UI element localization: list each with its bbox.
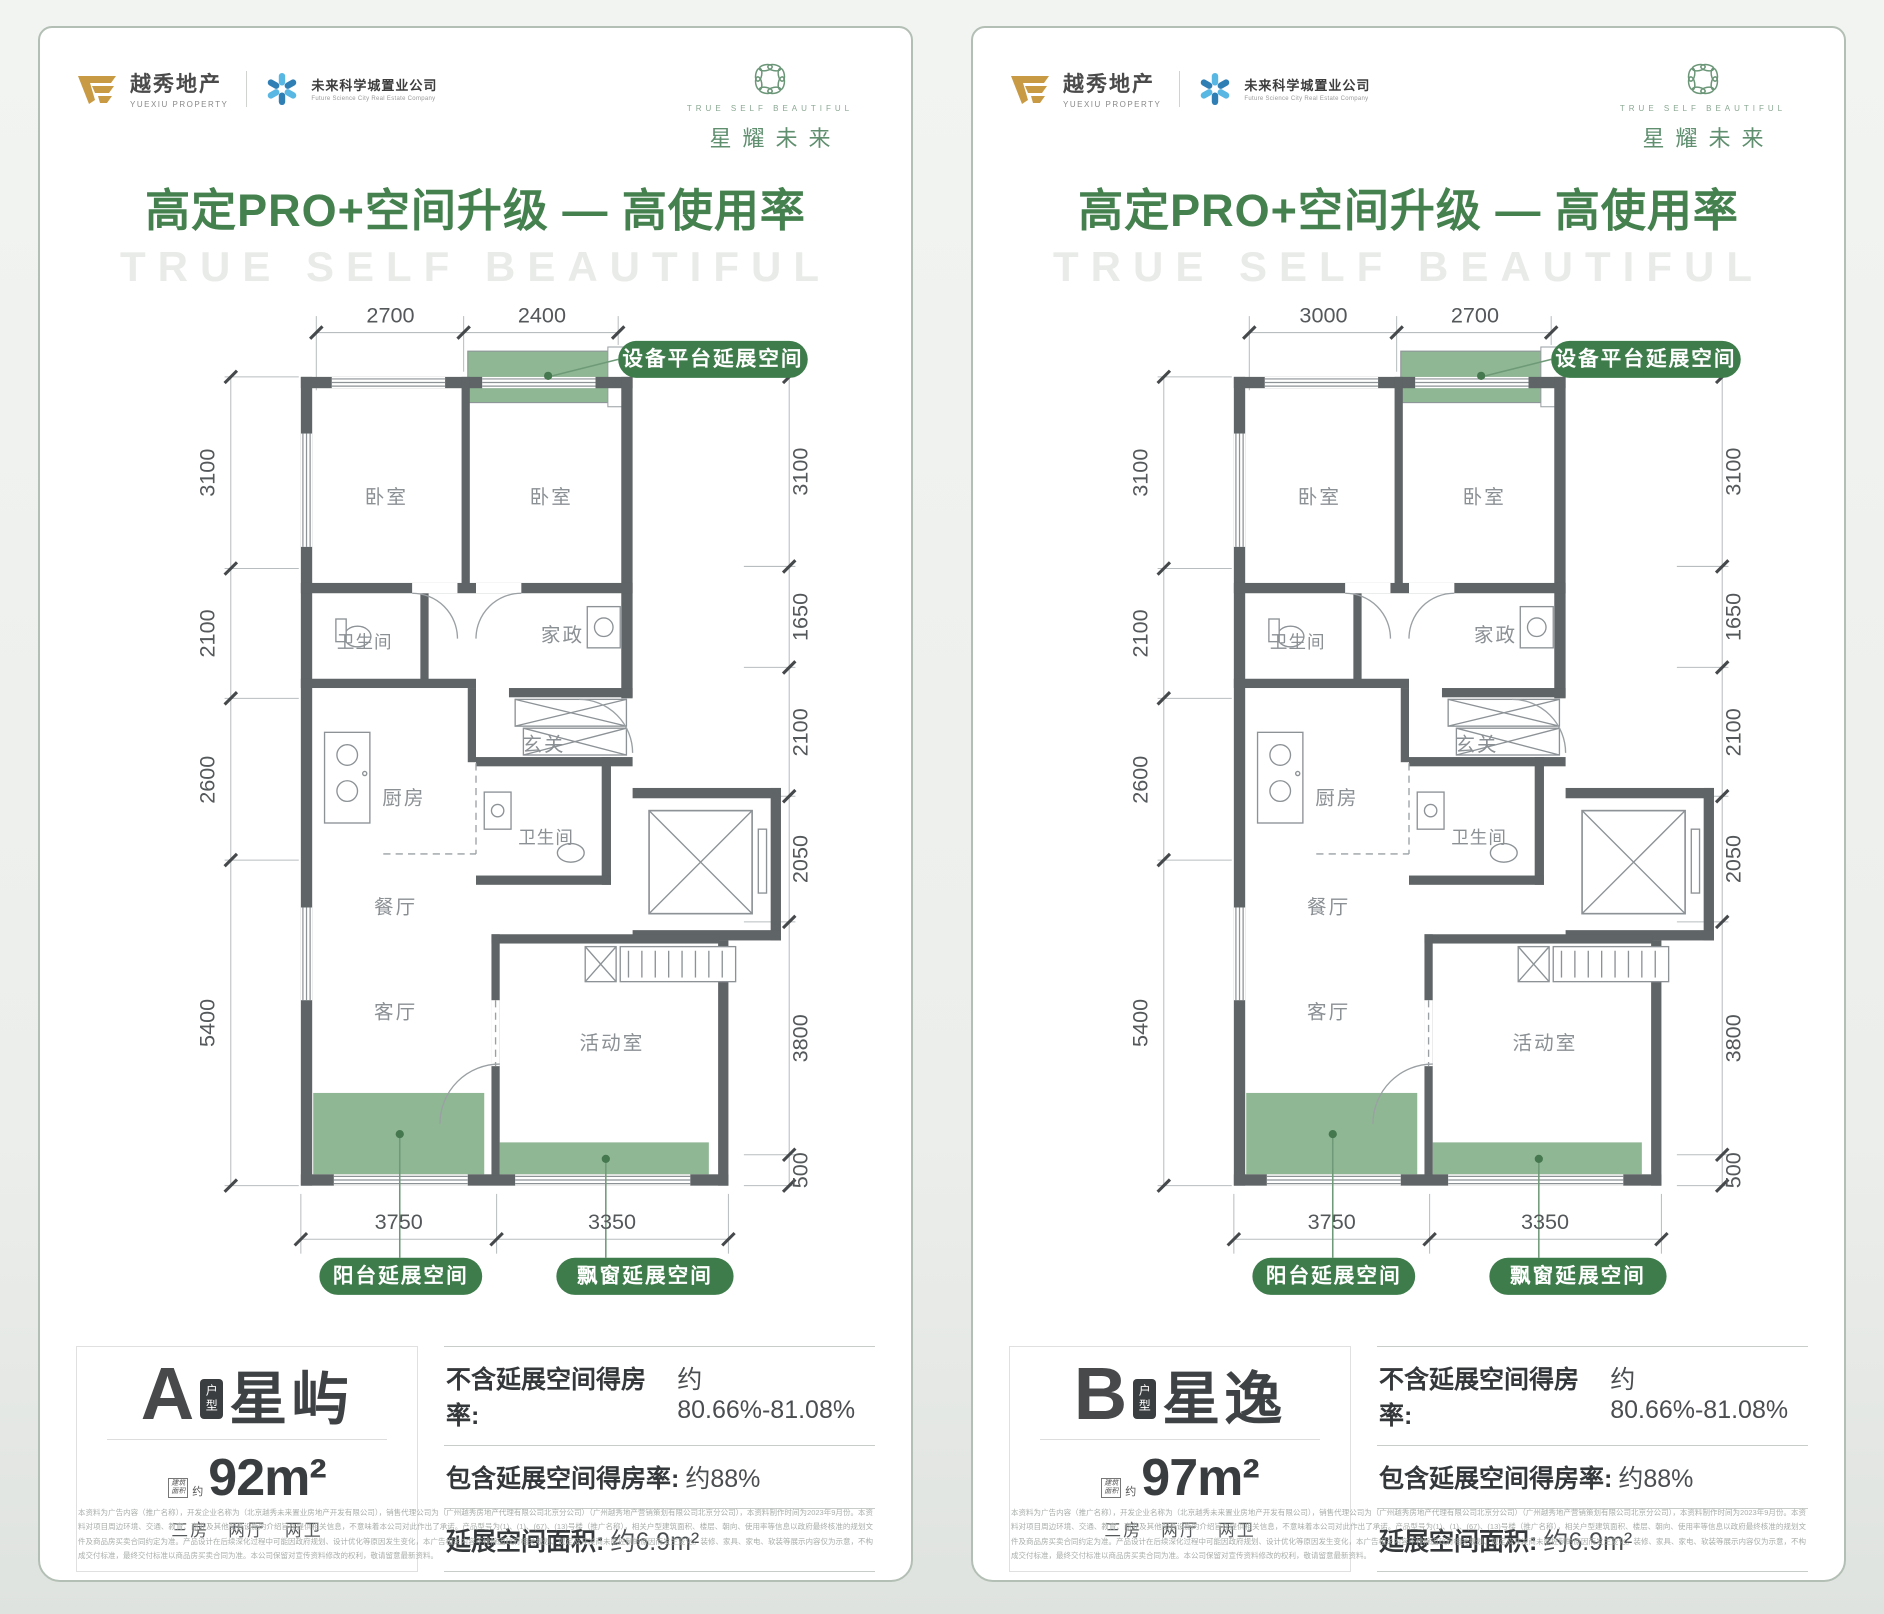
brand-logos: 越秀地产 YUEXIU PROPERTY 未来科学城置业公司 Future Sc… <box>76 68 437 109</box>
floor-plan: 设备平台延展空间 阳台延展空间 飘窗延展空间 卧室 卧室 卫生间 家政 玄关 厨… <box>1069 279 1749 1320</box>
callout-platform-label: 设备平台延展空间 <box>1555 347 1736 371</box>
unit-card: 越秀地产 YUEXIU PROPERTY 未来科学城置业公司 Future Sc… <box>38 26 913 1582</box>
unit-type-badge: 户型 <box>200 1379 223 1419</box>
svg-text:2400: 2400 <box>517 302 565 327</box>
partner-sub: Future Science City Real Estate Company <box>311 96 437 102</box>
svg-text:500: 500 <box>787 1152 812 1188</box>
stat-row: 不含延展空间得房率: 约80.66%-81.08% <box>1377 1346 1808 1445</box>
callout-platform-label: 设备平台延展空间 <box>622 347 803 371</box>
callout-platform: 设备平台延展空间 <box>1551 341 1741 378</box>
yuexiu-name: 越秀地产 <box>1063 68 1161 98</box>
svg-text:3100: 3100 <box>787 448 812 496</box>
callout-platform: 设备平台延展空间 <box>618 341 808 378</box>
project-emblem: TRUE SELF BEAUTIFUL 星耀未来 <box>665 58 875 153</box>
partner-name: 未来科学城置业公司 <box>1244 75 1370 94</box>
area-value: 92m² <box>208 1448 325 1508</box>
svg-text:厨房: 厨房 <box>382 787 425 809</box>
svg-text:5400: 5400 <box>1127 999 1152 1047</box>
area-badge: 建筑面积 <box>1101 1478 1121 1498</box>
callout-balcony: 阳台延展空间 <box>319 1258 482 1295</box>
svg-text:3100: 3100 <box>194 449 219 497</box>
svg-text:活动室: 活动室 <box>1512 1033 1577 1055</box>
partner-logo-icon <box>1198 72 1232 106</box>
svg-text:卫生间: 卫生间 <box>1269 632 1325 652</box>
svg-text:3800: 3800 <box>787 1014 812 1062</box>
card-header: 越秀地产 YUEXIU PROPERTY 未来科学城置业公司 Future Sc… <box>76 58 875 132</box>
emblem-caption: TRUE SELF BEAUTIFUL <box>687 104 853 113</box>
svg-text:2050: 2050 <box>1720 835 1745 883</box>
legal-disclaimer: 本资料为广告内容（推广名称），开发企业名称为（北京越秀未来置业房地产开发有限公司… <box>1011 1506 1806 1565</box>
svg-text:3100: 3100 <box>1127 449 1152 497</box>
legal-disclaimer: 本资料为广告内容（推广名称），开发企业名称为（北京越秀未来置业房地产开发有限公司… <box>78 1506 873 1565</box>
page: 越秀地产 YUEXIU PROPERTY 未来科学城置业公司 Future Sc… <box>0 0 1884 1608</box>
svg-text:家政: 家政 <box>1473 625 1516 647</box>
stat-row: 不含延展空间得房率: 约80.66%-81.08% <box>444 1346 875 1445</box>
emblem-title: 星耀未来 <box>1631 121 1774 153</box>
partner-logo-icon <box>265 72 299 106</box>
watermark-text: TRUE SELF BEAUTIFUL <box>1009 243 1808 291</box>
callout-balcony-label: 阳台延展空间 <box>1265 1264 1401 1288</box>
svg-text:500: 500 <box>1720 1152 1745 1188</box>
svg-text:玄关: 玄关 <box>1455 734 1498 756</box>
svg-text:玄关: 玄关 <box>522 734 565 756</box>
svg-text:3750: 3750 <box>374 1209 422 1234</box>
svg-text:卧室: 卧室 <box>364 487 407 509</box>
svg-text:2100: 2100 <box>194 609 219 657</box>
emblem-title: 星耀未来 <box>698 121 841 153</box>
svg-text:家政: 家政 <box>540 625 583 647</box>
logo-divider <box>246 71 247 107</box>
svg-text:卫生间: 卫生间 <box>1451 828 1507 848</box>
svg-text:2600: 2600 <box>1127 756 1152 804</box>
project-emblem: TRUE SELF BEAUTIFUL 星耀未来 <box>1598 58 1808 153</box>
callout-bay-window-label: 飘窗延展空间 <box>1509 1264 1645 1288</box>
svg-text:卧室: 卧室 <box>1462 487 1505 509</box>
yuexiu-name: 越秀地产 <box>130 68 228 98</box>
watermark-text: TRUE SELF BEAUTIFUL <box>76 243 875 291</box>
svg-text:卫生间: 卫生间 <box>336 632 392 652</box>
unit-type-badge: 户型 <box>1133 1379 1156 1419</box>
svg-text:3750: 3750 <box>1307 1209 1355 1234</box>
yuexiu-logo-icon <box>1009 70 1051 108</box>
floor-plan: 设备平台延展空间 阳台延展空间 飘窗延展空间 卧室 卧室 卫生间 家政 玄关 厨… <box>136 279 816 1320</box>
svg-text:3800: 3800 <box>1720 1014 1745 1062</box>
yuexiu-logo-text: 越秀地产 YUEXIU PROPERTY <box>1063 68 1161 109</box>
svg-text:卧室: 卧室 <box>529 487 572 509</box>
callout-bay-window: 飘窗延展空间 <box>556 1258 733 1295</box>
area-approx: 约 <box>1125 1483 1136 1499</box>
partner-name: 未来科学城置业公司 <box>311 75 437 94</box>
svg-text:3350: 3350 <box>587 1209 635 1234</box>
page-title: 高定PRO+空间升级 — 高使用率 <box>76 174 875 239</box>
divider <box>107 1439 387 1440</box>
yuexiu-sub: YUEXIU PROPERTY <box>1063 100 1161 109</box>
svg-text:餐厅: 餐厅 <box>374 897 417 919</box>
svg-text:1650: 1650 <box>1720 593 1745 641</box>
brand-logos: 越秀地产 YUEXIU PROPERTY 未来科学城置业公司 Future Sc… <box>1009 68 1370 109</box>
svg-text:2050: 2050 <box>787 835 812 883</box>
partner-sub: Future Science City Real Estate Company <box>1244 96 1370 102</box>
svg-text:5400: 5400 <box>194 999 219 1047</box>
svg-text:3100: 3100 <box>1720 448 1745 496</box>
yuexiu-sub: YUEXIU PROPERTY <box>130 100 228 109</box>
svg-text:3000: 3000 <box>1299 302 1347 327</box>
area-approx: 约 <box>192 1483 203 1499</box>
svg-text:2100: 2100 <box>787 708 812 756</box>
page-title: 高定PRO+空间升级 — 高使用率 <box>1009 174 1808 239</box>
svg-text:2700: 2700 <box>366 302 414 327</box>
svg-text:活动室: 活动室 <box>579 1033 644 1055</box>
emblem-caption: TRUE SELF BEAUTIFUL <box>1620 104 1786 113</box>
svg-text:3350: 3350 <box>1520 1209 1568 1234</box>
unit-card: 越秀地产 YUEXIU PROPERTY 未来科学城置业公司 Future Sc… <box>971 26 1846 1582</box>
callout-bay-window-label: 飘窗延展空间 <box>576 1264 712 1288</box>
svg-text:客厅: 客厅 <box>1307 1002 1350 1024</box>
card-header: 越秀地产 YUEXIU PROPERTY 未来科学城置业公司 Future Sc… <box>1009 58 1808 132</box>
divider <box>1040 1439 1320 1440</box>
svg-text:2700: 2700 <box>1450 302 1498 327</box>
svg-text:1650: 1650 <box>787 593 812 641</box>
svg-text:卧室: 卧室 <box>1297 487 1340 509</box>
partner-logo-text: 未来科学城置业公司 Future Science City Real Estat… <box>311 75 437 102</box>
svg-text:2100: 2100 <box>1127 609 1152 657</box>
callout-balcony-label: 阳台延展空间 <box>332 1264 468 1288</box>
unit-name: 星逸 <box>1162 1372 1286 1427</box>
yuexiu-logo-icon <box>76 70 118 108</box>
svg-text:客厅: 客厅 <box>374 1002 417 1024</box>
svg-text:餐厅: 餐厅 <box>1307 897 1350 919</box>
area-value: 97m² <box>1141 1448 1258 1508</box>
logo-divider <box>1179 71 1180 107</box>
svg-text:2600: 2600 <box>194 756 219 804</box>
stat-row: 包含延展空间得房率: 约88% <box>444 1445 875 1508</box>
callout-balcony: 阳台延展空间 <box>1252 1258 1415 1295</box>
stat-row: 包含延展空间得房率: 约88% <box>1377 1445 1808 1508</box>
flower-emblem-icon <box>748 58 792 100</box>
yuexiu-logo-text: 越秀地产 YUEXIU PROPERTY <box>130 68 228 109</box>
unit-letter: B <box>1074 1361 1127 1428</box>
unit-name: 星屿 <box>229 1372 353 1427</box>
unit-letter: A <box>141 1361 194 1428</box>
svg-text:卫生间: 卫生间 <box>518 828 574 848</box>
partner-logo-text: 未来科学城置业公司 Future Science City Real Estat… <box>1244 75 1370 102</box>
flower-emblem-icon <box>1681 58 1725 100</box>
area-badge: 建筑面积 <box>168 1478 188 1498</box>
svg-text:2100: 2100 <box>1720 708 1745 756</box>
svg-text:厨房: 厨房 <box>1315 787 1358 809</box>
callout-bay-window: 飘窗延展空间 <box>1489 1258 1666 1295</box>
